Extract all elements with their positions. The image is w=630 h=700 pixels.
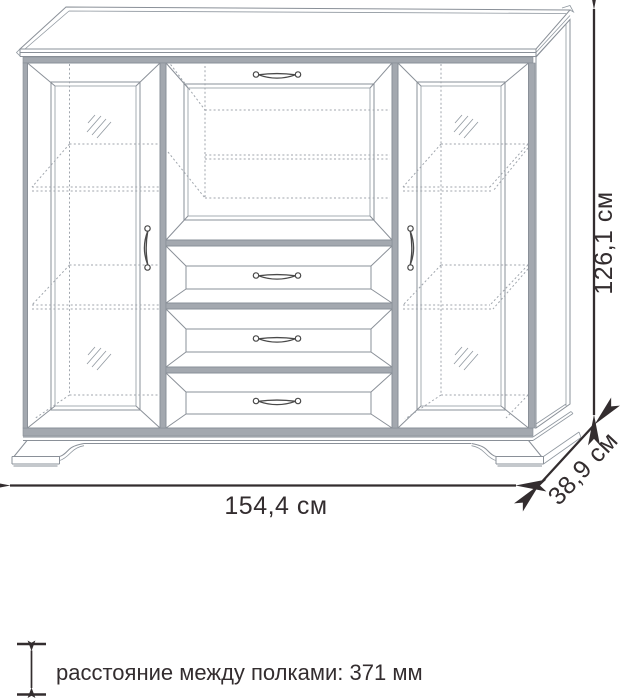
left-mid-stile	[160, 63, 166, 428]
right-door-handle	[408, 226, 414, 270]
right-door	[398, 63, 529, 428]
cabinet-side-panel	[536, 20, 570, 429]
depth-dimension: 38,9 см	[539, 424, 624, 511]
shelf-spacing-label: расстояние между полками: 371 мм	[56, 660, 423, 685]
drawer-2-handle	[253, 336, 300, 342]
height-dimension-label: 126,1 см	[590, 191, 618, 294]
plinth-and-feet	[12, 412, 581, 467]
glass-mark-bottom-right	[454, 347, 478, 370]
right-door-hidden-shelf-lines	[403, 64, 528, 419]
drawer-1-handle	[253, 273, 300, 279]
width-dimension-label: 154,4 см	[224, 492, 327, 520]
cabinet-drawing	[12, 6, 581, 467]
furniture-dimension-diagram: 154,4 см 126,1 см 38,9 см расстояние меж…	[0, 0, 630, 700]
left-door	[28, 63, 161, 428]
diagram-canvas: 154,4 см 126,1 см 38,9 см расстояние меж…	[0, 0, 630, 700]
glass-mark-top-left	[87, 115, 111, 138]
shelf-spacing-legend: расстояние между полками: 371 мм	[17, 644, 423, 695]
glass-mark-bottom-left	[87, 347, 111, 370]
divider-3	[166, 367, 392, 373]
divider-2	[166, 303, 392, 309]
drawer-3-handle	[253, 398, 300, 404]
drawer-2	[166, 309, 392, 367]
left-foot	[12, 441, 84, 467]
top-rail	[23, 57, 533, 63]
cabinet-top	[17, 6, 574, 57]
center-flap-door	[166, 61, 392, 240]
bottom-rail	[23, 428, 533, 436]
left-door-handle	[144, 226, 150, 270]
center-hidden-shelf-lines	[168, 61, 390, 198]
divider-1	[166, 240, 392, 246]
drawer-3	[166, 373, 392, 428]
flap-handle	[253, 72, 300, 78]
right-foot	[472, 441, 544, 467]
height-dimension: 126,1 см	[590, 9, 618, 415]
drawer-1	[166, 246, 392, 303]
left-stile	[23, 63, 28, 428]
glass-mark-top-right	[454, 115, 478, 138]
right-mid-stile	[392, 63, 398, 428]
width-dimension: 154,4 см	[10, 486, 516, 521]
right-stile	[529, 63, 536, 428]
